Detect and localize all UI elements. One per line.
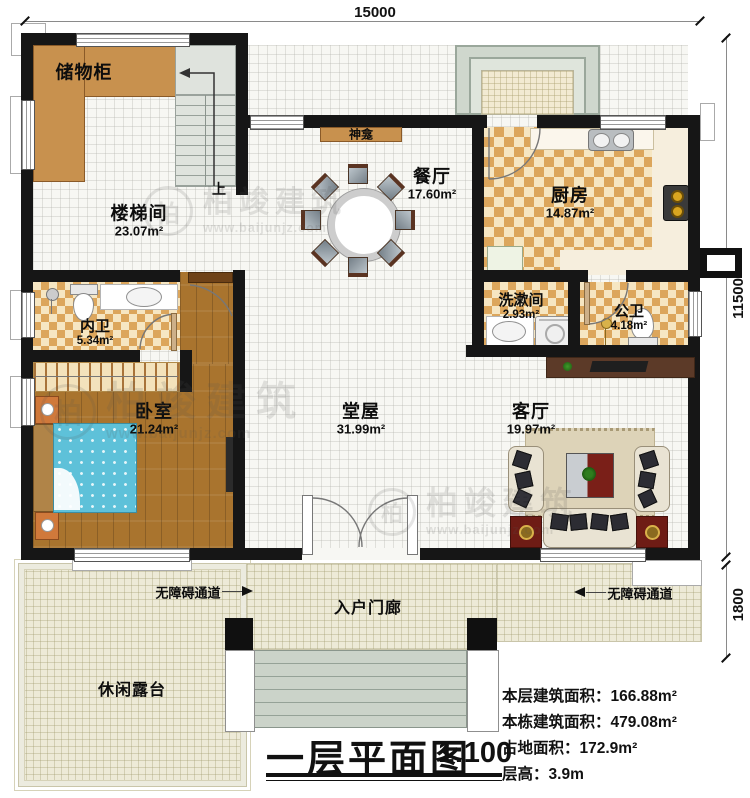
window-living-bottom xyxy=(540,548,646,562)
stat-label: 本层建筑面积： xyxy=(502,688,611,705)
room-area: 19.97m² xyxy=(507,422,555,436)
entrance-steps xyxy=(253,650,467,728)
bedroom-door-leaf xyxy=(188,272,233,283)
room-name: 餐厅 xyxy=(408,167,456,188)
title-underline-thin xyxy=(266,780,502,781)
accessible-text: 无障碍通道 xyxy=(607,587,672,602)
room-area: 5.34m² xyxy=(77,335,113,348)
stairs-up-text: 上 xyxy=(212,181,226,197)
exterior-landing xyxy=(632,560,702,586)
label-kitchen: 厨房 14.87m² xyxy=(546,186,594,221)
room-name: 厨房 xyxy=(546,186,594,207)
stat-value: 172.9m² xyxy=(580,740,638,757)
room-name: 内卫 xyxy=(77,318,113,335)
sofa-cushion xyxy=(515,471,534,490)
kitchen-sink xyxy=(588,129,634,151)
room-name: 公卫 xyxy=(611,303,647,320)
bay-window-inner xyxy=(481,70,574,115)
stat-floor-height: 层高：3.9m xyxy=(502,762,584,784)
stat-value: 166.88m² xyxy=(611,688,677,705)
bedroom-tv xyxy=(226,437,233,492)
wall-right xyxy=(688,115,700,560)
sofa-cushion xyxy=(590,513,609,531)
porch-column-right xyxy=(467,618,497,650)
floor-plan: 储物柜 楼梯间 23.07m² 上 神龛 餐厅 17.60m² 厨房 14.87… xyxy=(0,0,750,798)
sofa-cushion xyxy=(638,471,657,490)
wall-bedroom-right xyxy=(233,270,245,548)
stat-footprint-area: 占地面积：172.9m² xyxy=(502,736,637,758)
room-name: 入户门廊 xyxy=(334,600,402,617)
private-toilet xyxy=(70,284,96,322)
room-area: 31.99m² xyxy=(337,422,385,436)
dim-line-top xyxy=(25,21,700,22)
chimney-box xyxy=(700,248,742,278)
window-storage xyxy=(76,33,190,47)
leader-line xyxy=(586,592,606,593)
room-name: 储物柜 xyxy=(56,63,113,84)
wall-dining-kitchen xyxy=(472,115,484,345)
room-name: 客厅 xyxy=(507,402,555,423)
wardrobe xyxy=(33,362,180,392)
window-bedroom-left xyxy=(21,378,35,426)
room-area: 4.18m² xyxy=(611,320,647,333)
label-stairwell: 楼梯间 23.07m² xyxy=(111,204,168,239)
tv-cabinet xyxy=(546,357,695,378)
stat-label: 层高： xyxy=(502,766,549,783)
window-stairwell-left xyxy=(21,100,35,170)
room-name: 堂屋 xyxy=(337,402,385,423)
wall-bath-bottom xyxy=(466,345,700,357)
room-name: 洗漱间 xyxy=(498,292,543,309)
window-kitchen-top xyxy=(600,115,666,130)
sofa-cushion xyxy=(550,513,569,531)
dining-chair xyxy=(301,210,321,230)
dim-line-right-lower xyxy=(726,563,727,658)
stat-value: 479.08m² xyxy=(611,714,677,731)
dim-right-lower: 1800 xyxy=(730,588,747,621)
label-shrine: 神龛 xyxy=(349,126,373,143)
bed-headboard xyxy=(33,424,55,512)
private-bath-sink xyxy=(126,287,162,307)
room-area: 14.87m² xyxy=(546,206,594,220)
wall-stair-right xyxy=(236,33,248,195)
shrine-text: 神龛 xyxy=(349,128,373,142)
private-bath-door-leaf xyxy=(171,313,177,351)
label-public-bath: 公卫 4.18m² xyxy=(611,303,647,333)
dim-top: 15000 xyxy=(354,4,396,21)
label-living: 客厅 19.97m² xyxy=(507,402,555,437)
entrance-door-leaf-left xyxy=(302,495,313,555)
stat-label: 占地面积： xyxy=(502,740,580,757)
dim-right: 11500 xyxy=(730,278,747,319)
label-terrace: 休闲露台 xyxy=(98,676,166,700)
stove xyxy=(663,185,689,221)
leader-line xyxy=(222,591,242,592)
wall-bath-divider xyxy=(568,282,580,345)
nightstand-top xyxy=(35,396,59,424)
wall-private-bath-bottom xyxy=(33,350,140,362)
porch-column-base-right xyxy=(467,650,499,732)
room-name: 卧室 xyxy=(130,402,178,423)
stat-label: 本栋建筑面积： xyxy=(502,714,611,731)
room-area: 2.93m² xyxy=(498,309,543,322)
wall-private-bath-top xyxy=(21,270,180,282)
stat-building-area: 本栋建筑面积：479.08m² xyxy=(502,710,677,732)
stair-landing xyxy=(175,45,236,95)
window-private-bath-left xyxy=(21,292,35,338)
stair-rail xyxy=(205,95,206,187)
washroom-sink xyxy=(492,321,526,342)
label-accessible-left: 无障碍通道 xyxy=(155,583,220,602)
label-main-hall: 堂屋 31.99m² xyxy=(337,402,385,437)
end-table-left xyxy=(510,516,542,548)
entrance-door-leaf-right xyxy=(407,495,418,555)
dining-chair xyxy=(348,257,368,277)
dining-chair xyxy=(348,164,368,184)
sofa-cushion xyxy=(569,513,588,531)
window-public-bath-right xyxy=(688,291,702,337)
dim-line-right xyxy=(726,36,727,557)
public-bath-door-leaf xyxy=(584,282,590,325)
coffee-table xyxy=(566,453,614,498)
label-bedroom: 卧室 21.24m² xyxy=(130,402,178,437)
stat-value: 3.9m xyxy=(549,766,584,783)
label-private-bath: 内卫 5.34m² xyxy=(77,318,113,348)
stat-floor-area: 本层建筑面积：166.88m² xyxy=(502,684,677,706)
accessible-text: 无障碍通道 xyxy=(155,586,220,601)
window-sill xyxy=(700,103,715,141)
room-area: 21.24m² xyxy=(130,422,178,436)
nightstand-bottom xyxy=(35,512,59,540)
porch-column-left xyxy=(225,618,253,650)
label-stairs-up: 上 xyxy=(212,179,226,199)
room-area: 23.07m² xyxy=(111,224,168,238)
title-underline-thick xyxy=(266,773,502,777)
sofa-cushion xyxy=(610,513,629,531)
room-name: 休闲露台 xyxy=(98,682,166,699)
label-storage: 储物柜 xyxy=(56,63,113,84)
wardrobe-rod xyxy=(35,376,178,377)
label-dining: 餐厅 17.60m² xyxy=(408,167,456,202)
wall-kitchen-bottom-left xyxy=(472,270,588,282)
arrow-left-icon xyxy=(574,587,585,597)
label-porch: 入户门廊 xyxy=(334,594,402,618)
label-washroom: 洗漱间 2.93m² xyxy=(498,292,543,322)
window-dining-top xyxy=(250,115,304,130)
dining-chair xyxy=(395,210,415,230)
shower-head xyxy=(44,288,60,314)
label-accessible-right: 无障碍通道 xyxy=(607,584,672,603)
wall-wardrobe-right xyxy=(180,350,192,392)
room-name: 楼梯间 xyxy=(111,204,168,225)
room-area: 17.60m² xyxy=(408,187,456,201)
entrance-opening xyxy=(302,548,420,560)
window-bedroom-bottom xyxy=(74,548,190,562)
end-table-right xyxy=(636,516,668,548)
arrow-right-icon xyxy=(242,586,253,596)
porch-column-base-left xyxy=(225,650,255,732)
